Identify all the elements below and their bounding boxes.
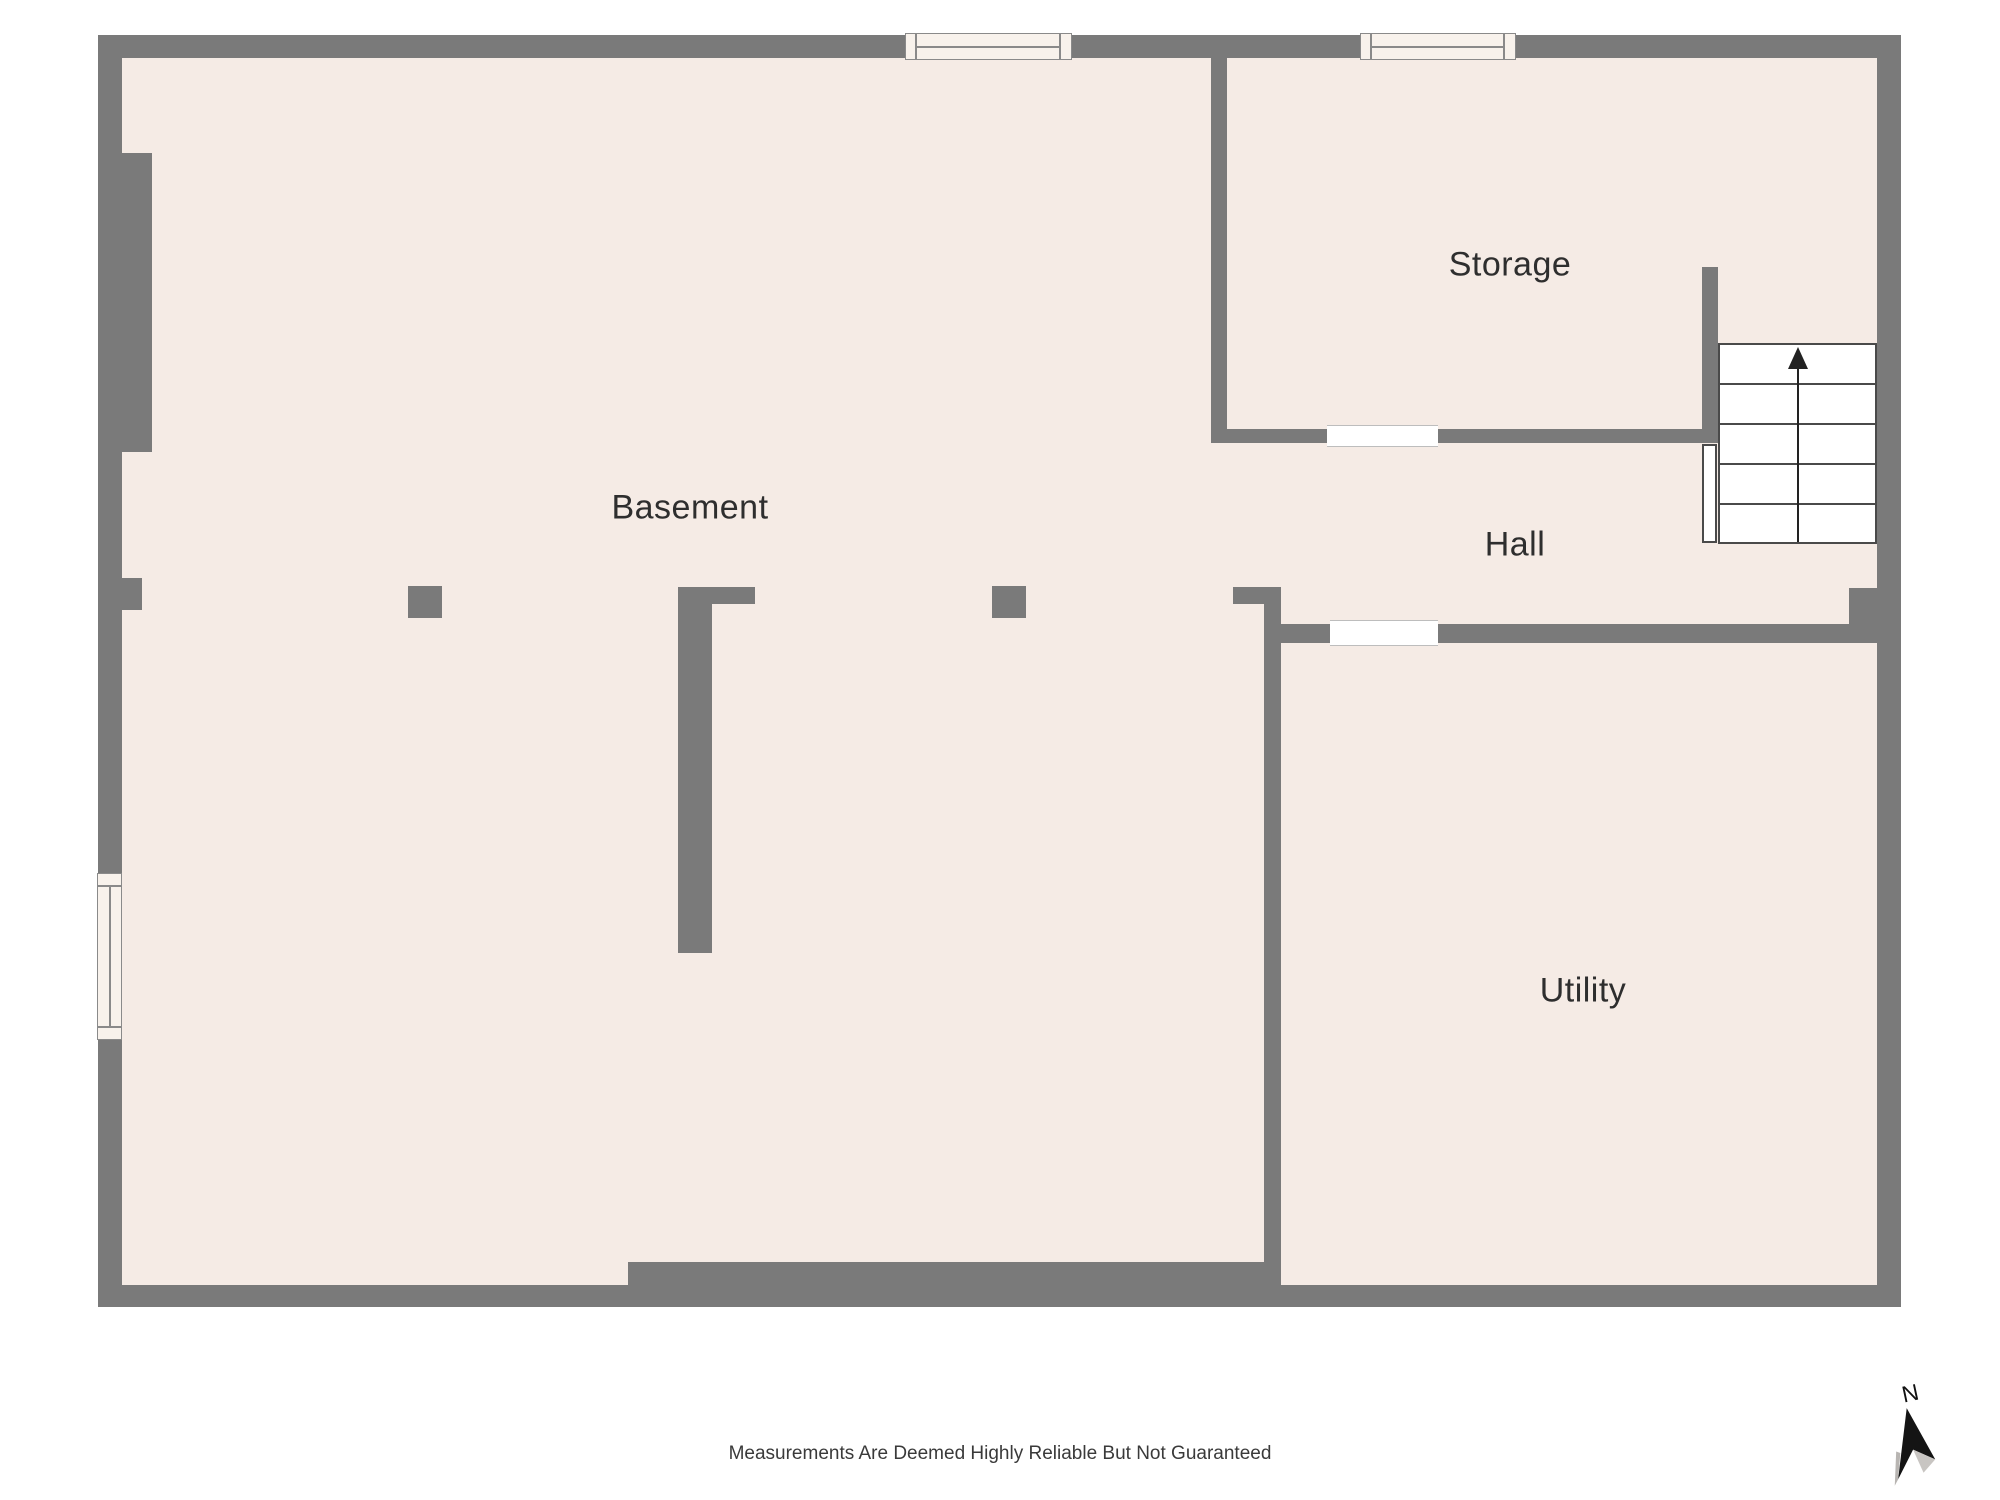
window-pane-line	[109, 886, 111, 1027]
left-wall-pilaster	[122, 153, 152, 452]
stair-handrail	[1702, 444, 1717, 543]
window-pane-line	[1371, 46, 1504, 48]
right-wall-pilaster	[1849, 588, 1877, 630]
page: { "floorplan": { "rooms": [ {"label": "B…	[0, 0, 2000, 1500]
stair-side-wall	[1702, 267, 1718, 443]
utility-door-opening	[1330, 620, 1438, 646]
stair-direction-line	[1797, 367, 1799, 542]
up-arrow-icon	[1788, 347, 1808, 369]
basement-column-1	[408, 586, 442, 618]
room-label-utility: Utility	[1540, 972, 1627, 1011]
floor-bottom-left	[122, 1262, 628, 1285]
floor-plan: Basement Storage Hall Utility Measuremen…	[0, 0, 2000, 1500]
utility-left-wall	[1264, 587, 1281, 1285]
north-arrow-icon: N	[1880, 1380, 1950, 1500]
window-icon-top-2	[1360, 33, 1516, 60]
room-label-hall: Hall	[1485, 526, 1546, 565]
disclaimer-text: Measurements Are Deemed Highly Reliable …	[729, 1443, 1272, 1465]
storage-left-wall	[1211, 58, 1227, 443]
left-wall-bump	[122, 578, 142, 610]
window-pane-line	[916, 46, 1060, 48]
room-label-storage: Storage	[1449, 246, 1572, 285]
basement-column-2	[992, 586, 1026, 618]
center-wall	[678, 587, 712, 953]
floor-bottom-right	[1266, 1262, 1877, 1285]
window-icon-left	[97, 873, 122, 1040]
compass-needle	[1880, 1404, 1944, 1494]
staircase	[1718, 343, 1877, 544]
storage-door-opening	[1327, 425, 1438, 447]
room-label-basement: Basement	[611, 489, 768, 528]
storage-bottom-wall	[1211, 429, 1718, 443]
window-icon-top-1	[905, 33, 1072, 60]
floor-main	[122, 58, 1877, 1262]
